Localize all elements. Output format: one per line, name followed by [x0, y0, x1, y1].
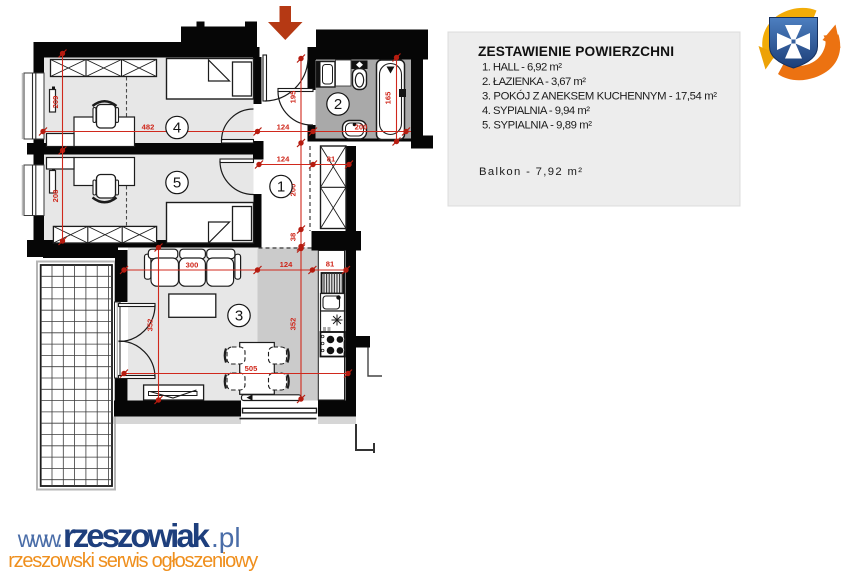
svg-text:124: 124: [280, 260, 293, 269]
svg-text:81: 81: [326, 260, 335, 269]
svg-text:rzeszowiak: rzeszowiak: [63, 517, 211, 554]
svg-text:482: 482: [142, 123, 155, 132]
svg-text:81: 81: [327, 155, 336, 164]
svg-text:352: 352: [289, 318, 298, 331]
svg-text:ZESTAWIENIE POWIERZCHNI: ZESTAWIENIE POWIERZCHNI: [478, 44, 674, 59]
svg-text:209: 209: [51, 96, 60, 109]
svg-text:505: 505: [245, 364, 258, 373]
svg-text:124: 124: [277, 123, 290, 132]
svg-text:352: 352: [146, 319, 155, 332]
svg-text:2: 2: [334, 96, 342, 113]
svg-text:.pl: .pl: [211, 522, 241, 553]
svg-text:38: 38: [289, 233, 298, 241]
svg-text:1. HALL - 6,92 m²: 1. HALL - 6,92 m²: [482, 62, 562, 74]
svg-text:2. ŁAZIENKA - 3,67 m²: 2. ŁAZIENKA - 3,67 m²: [482, 76, 586, 88]
svg-text:124: 124: [277, 155, 290, 164]
svg-text:5. SYPIALNIA - 9,89 m²: 5. SYPIALNIA - 9,89 m²: [482, 120, 592, 132]
svg-text:165: 165: [384, 91, 393, 104]
svg-text:200: 200: [355, 123, 368, 132]
svg-text:5: 5: [173, 175, 181, 192]
svg-text:4. SYPIALNIA - 9,94 m²: 4. SYPIALNIA - 9,94 m²: [482, 105, 590, 117]
svg-text:4: 4: [173, 120, 181, 137]
svg-text:208: 208: [51, 190, 60, 203]
svg-text:195: 195: [289, 90, 298, 103]
svg-text:www.: www.: [17, 526, 63, 552]
svg-text:1: 1: [277, 179, 285, 196]
svg-text:rzeszowski serwis ogłoszeniowy: rzeszowski serwis ogłoszeniowy: [8, 550, 258, 572]
svg-text:3: 3: [235, 308, 243, 325]
svg-text:300: 300: [186, 261, 199, 270]
svg-text:3. POKÓJ Z ANEKSEM KUCHENNYM -: 3. POKÓJ Z ANEKSEM KUCHENNYM - 17,54 m²: [482, 90, 717, 103]
